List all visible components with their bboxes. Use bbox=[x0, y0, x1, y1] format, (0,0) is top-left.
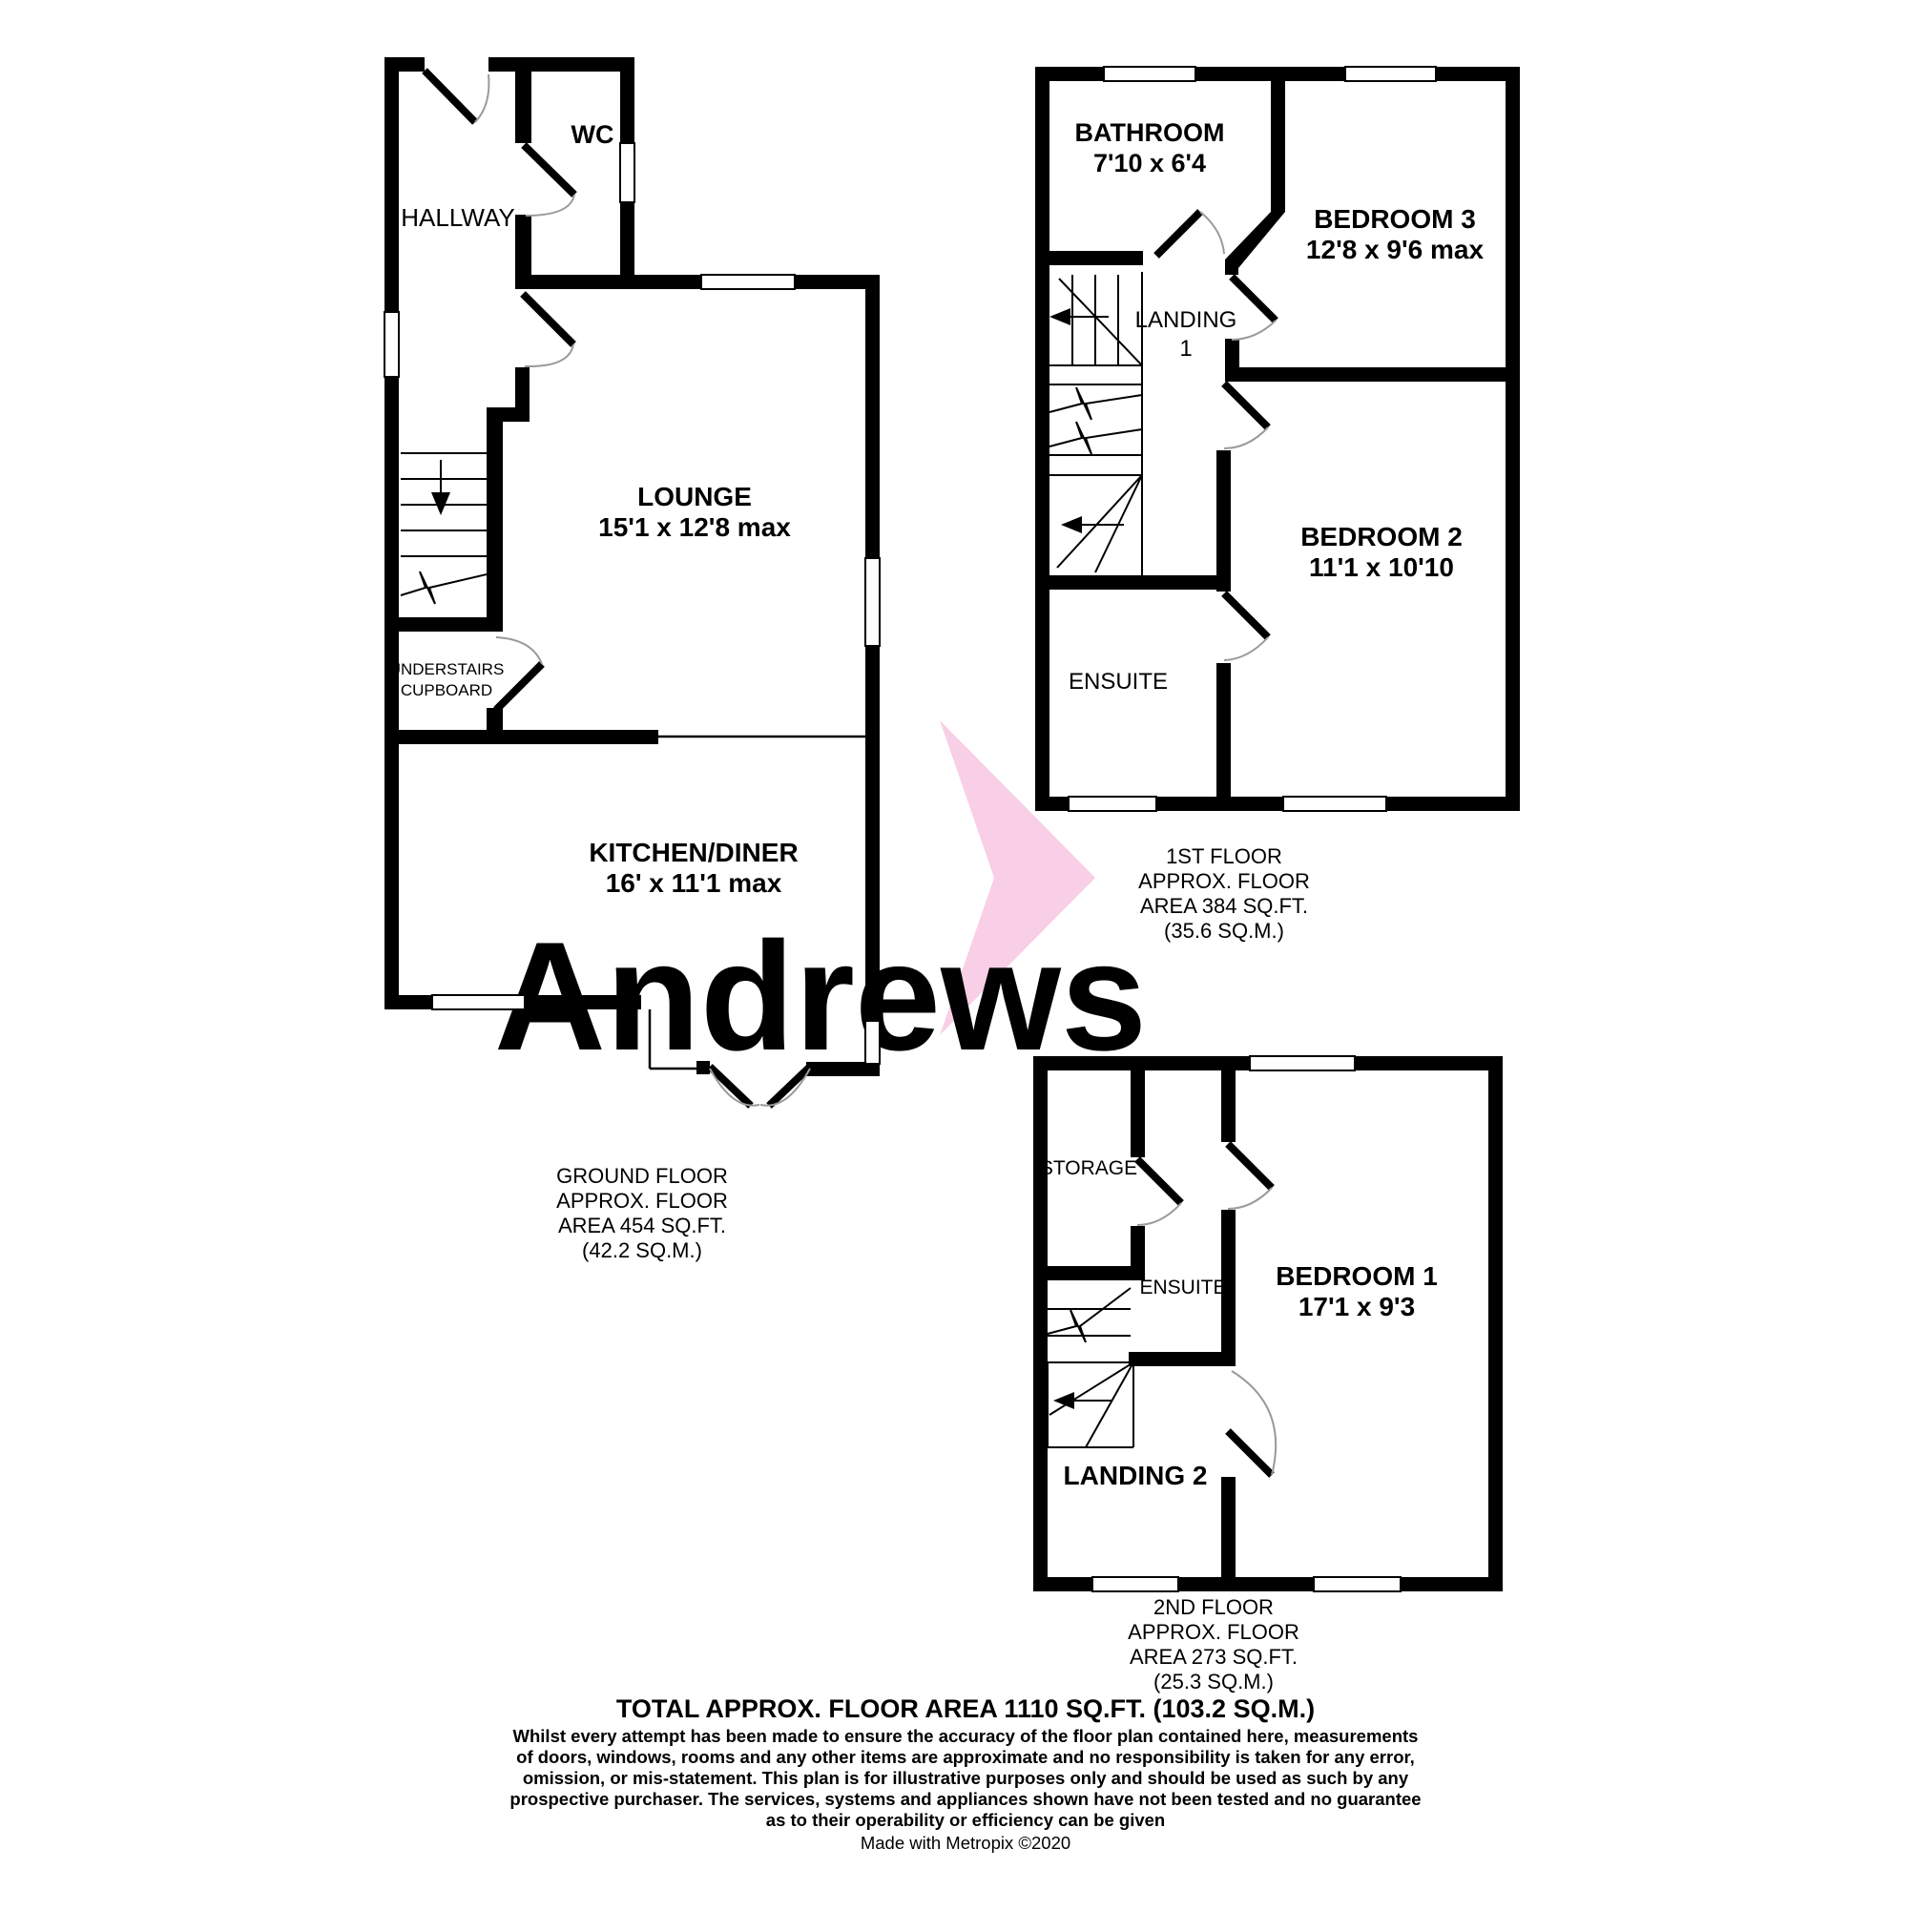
door-arc bbox=[475, 74, 488, 122]
stair-break-line bbox=[1049, 422, 1142, 454]
first-doors bbox=[1156, 212, 1276, 660]
disclaimer: Whilst every attempt has been made to en… bbox=[509, 1726, 1421, 1830]
window bbox=[865, 1021, 880, 1064]
window bbox=[1250, 1056, 1355, 1070]
first-floor-area-summary: 1ST FLOOR APPROX. FLOOR AREA 384 SQ.FT. … bbox=[1138, 844, 1310, 943]
window bbox=[1283, 797, 1386, 811]
summary-line: APPROX. FLOOR bbox=[556, 1189, 728, 1213]
wc-door bbox=[524, 145, 574, 216]
floorplan-page: Andrews bbox=[0, 0, 1932, 1932]
bedroom1-door-upper bbox=[1228, 1144, 1272, 1209]
summary-line: (42.2 SQ.M.) bbox=[582, 1238, 702, 1262]
door-leaf bbox=[1224, 593, 1268, 637]
window bbox=[1069, 797, 1156, 811]
room-dims-bedroom2: 11'1 x 10'10 bbox=[1309, 552, 1454, 582]
door-leaf bbox=[425, 71, 475, 122]
room-label-understairs-line2: CUPBOARD bbox=[401, 681, 492, 699]
stair-block-outline bbox=[1048, 1362, 1133, 1447]
total-area-text: TOTAL APPROX. FLOOR AREA 1110 SQ.FT. (10… bbox=[616, 1694, 1315, 1723]
first-walls bbox=[1035, 67, 1520, 811]
window bbox=[1104, 67, 1195, 81]
first-ensuite-door bbox=[1224, 593, 1268, 660]
window bbox=[1345, 67, 1436, 81]
disclaimer-line: of doors, windows, rooms and any other i… bbox=[516, 1747, 1415, 1767]
room-label-bedroom2: BEDROOM 2 bbox=[1300, 522, 1463, 551]
stair-break-line bbox=[1048, 1288, 1131, 1342]
entry-door bbox=[425, 71, 488, 122]
window bbox=[701, 275, 795, 289]
first-windows bbox=[1069, 67, 1436, 811]
summary-line: AREA 454 SQ.FT. bbox=[558, 1214, 726, 1237]
window bbox=[865, 558, 880, 646]
room-label-storage: STORAGE bbox=[1040, 1157, 1137, 1179]
room-label-wc: WC bbox=[571, 120, 614, 149]
door-arc bbox=[1228, 1188, 1272, 1209]
summary-line: AREA 273 SQ.FT. bbox=[1130, 1645, 1298, 1669]
room-dims-kitchen: 16' x 11'1 max bbox=[606, 868, 782, 898]
ground-labels: HALLWAY WC LOUNGE 15'1 x 12'8 max UNDERS… bbox=[389, 120, 799, 898]
storage-door bbox=[1137, 1159, 1181, 1225]
room-dims-bathroom: 7'10 x 6'4 bbox=[1093, 149, 1206, 177]
summary-line: 1ST FLOOR bbox=[1166, 844, 1282, 868]
disclaimer-line: prospective purchaser. The services, sys… bbox=[509, 1789, 1421, 1809]
window bbox=[1314, 1577, 1401, 1591]
door-arc bbox=[526, 195, 574, 216]
door-leaf bbox=[1228, 1144, 1272, 1188]
stair-arrow-left-icon bbox=[1049, 308, 1070, 325]
first-stairs bbox=[1049, 272, 1142, 575]
bedroom1-door-lower bbox=[1228, 1371, 1276, 1475]
door-leaf bbox=[1156, 212, 1200, 256]
room-label-landing2: LANDING 2 bbox=[1064, 1461, 1208, 1490]
door-leaf bbox=[1224, 384, 1268, 427]
room-label-lounge: LOUNGE bbox=[637, 482, 752, 511]
ground-stairs bbox=[401, 453, 487, 604]
second-stairs bbox=[1048, 1288, 1133, 1447]
stair-winder-lines bbox=[1049, 1362, 1133, 1447]
room-label-bedroom1: BEDROOM 1 bbox=[1276, 1261, 1438, 1291]
stair-treads bbox=[1048, 1309, 1133, 1362]
disclaimer-line: Whilst every attempt has been made to en… bbox=[513, 1726, 1419, 1746]
room-label-first-ensuite: ENSUITE bbox=[1069, 669, 1168, 695]
disclaimer-line: as to their operability or efficiency ca… bbox=[766, 1810, 1165, 1830]
stair-treads bbox=[1049, 275, 1142, 475]
second-doors bbox=[1137, 1144, 1276, 1475]
room-label-second-ensuite: ENSUITE bbox=[1139, 1277, 1226, 1298]
disclaimer-line: omission, or mis-statement. This plan is… bbox=[523, 1768, 1409, 1788]
summary-line: (35.6 SQ.M.) bbox=[1164, 919, 1284, 943]
room-label-understairs-line1: UNDERSTAIRS bbox=[389, 660, 505, 678]
door-leaf bbox=[1228, 1431, 1272, 1475]
bedroom2-door bbox=[1224, 384, 1268, 448]
ground-floor-area-summary: GROUND FLOOR APPROX. FLOOR AREA 454 SQ.F… bbox=[556, 1164, 728, 1262]
room-dims-lounge: 15'1 x 12'8 max bbox=[598, 512, 791, 542]
room-label-kitchen: KITCHEN/DINER bbox=[589, 838, 798, 867]
lounge-door bbox=[523, 294, 573, 366]
bathroom-door bbox=[1156, 212, 1224, 256]
summary-line: GROUND FLOOR bbox=[556, 1164, 728, 1188]
door-arc bbox=[1224, 637, 1268, 660]
footer: TOTAL APPROX. FLOOR AREA 1110 SQ.FT. (10… bbox=[509, 1694, 1421, 1853]
stair-arrow-left-icon bbox=[1061, 516, 1082, 533]
bedroom3-door bbox=[1232, 277, 1276, 340]
door-leaf bbox=[524, 145, 574, 195]
summary-line: APPROX. FLOOR bbox=[1128, 1620, 1299, 1644]
room-label-hallway: HALLWAY bbox=[401, 203, 514, 232]
room-dims-bedroom3: 12'8 x 9'6 max bbox=[1306, 235, 1485, 264]
door-leaf bbox=[1232, 277, 1276, 321]
door-arc bbox=[1137, 1203, 1181, 1225]
summary-line: (25.3 SQ.M.) bbox=[1153, 1670, 1274, 1693]
room-label-landing1-line2: 1 bbox=[1179, 336, 1192, 362]
room-dims-bedroom1: 17'1 x 9'3 bbox=[1298, 1292, 1415, 1321]
summary-line: APPROX. FLOOR bbox=[1138, 869, 1310, 893]
door-arc bbox=[1232, 321, 1276, 340]
first-floor-plan: BATHROOM 7'10 x 6'4 BEDROOM 3 12'8 x 9'6… bbox=[1035, 67, 1520, 811]
door-arc bbox=[1200, 212, 1224, 254]
stair-break-line bbox=[401, 571, 487, 604]
window bbox=[620, 143, 634, 202]
room-label-bathroom: BATHROOM bbox=[1075, 118, 1225, 147]
second-floor-plan: STORAGE ENSUITE BEDROOM 1 17'1 x 9'3 LAN… bbox=[1033, 1056, 1503, 1591]
window bbox=[384, 312, 399, 377]
window bbox=[432, 995, 525, 1009]
summary-line: 2ND FLOOR bbox=[1153, 1595, 1274, 1619]
door-arc bbox=[525, 344, 573, 366]
credit-text: Made with Metropix ©2020 bbox=[861, 1833, 1070, 1853]
summary-line: AREA 384 SQ.FT. bbox=[1140, 894, 1308, 918]
room-label-landing1-line1: LANDING bbox=[1135, 307, 1237, 333]
floorplan-canvas: Andrews bbox=[0, 0, 1932, 1932]
door-arc bbox=[1224, 427, 1268, 448]
room-label-bedroom3: BEDROOM 3 bbox=[1314, 204, 1476, 234]
door-leaf bbox=[523, 294, 573, 344]
second-walls bbox=[1033, 1056, 1503, 1591]
window bbox=[1092, 1577, 1178, 1591]
stair-break-line bbox=[1049, 387, 1142, 420]
second-floor-area-summary: 2ND FLOOR APPROX. FLOOR AREA 273 SQ.FT. … bbox=[1128, 1595, 1299, 1693]
door-leaf bbox=[1137, 1159, 1181, 1203]
